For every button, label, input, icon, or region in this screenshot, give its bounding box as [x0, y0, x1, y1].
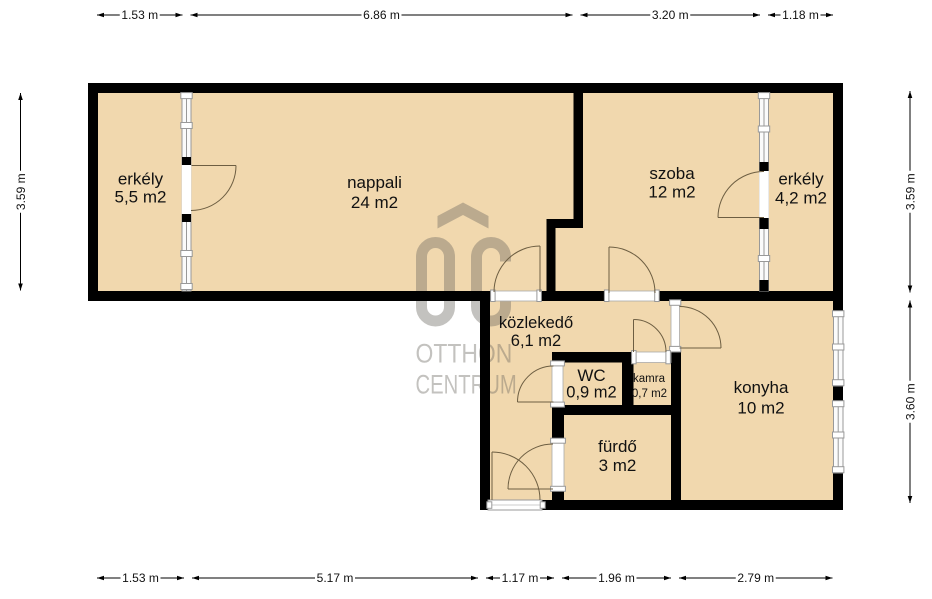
svg-text:konyha: konyha: [734, 378, 789, 397]
svg-text:3.59 m: 3.59 m: [14, 173, 28, 210]
svg-text:CENTRUM: CENTRUM: [416, 370, 517, 401]
svg-text:nappali: nappali: [347, 173, 402, 192]
svg-text:erkély: erkély: [778, 170, 824, 189]
svg-text:3.59 m: 3.59 m: [904, 173, 918, 210]
svg-text:0,7 m2: 0,7 m2: [632, 388, 667, 400]
svg-text:24 m2: 24 m2: [351, 193, 398, 212]
svg-text:3.20 m: 3.20 m: [652, 8, 689, 22]
svg-text:fürdő: fürdő: [598, 437, 637, 456]
svg-text:4,2 m2: 4,2 m2: [775, 189, 827, 208]
svg-text:1.17 m: 1.17 m: [502, 571, 539, 585]
svg-text:erkély: erkély: [118, 170, 164, 189]
svg-text:10 m2: 10 m2: [737, 399, 784, 418]
svg-text:5.17 m: 5.17 m: [317, 571, 354, 585]
svg-text:1.53 m: 1.53 m: [121, 8, 158, 22]
svg-text:2.79 m: 2.79 m: [737, 571, 774, 585]
svg-text:WC: WC: [577, 366, 605, 385]
svg-text:6.86 m: 6.86 m: [363, 8, 400, 22]
svg-text:közlekedő: közlekedő: [499, 314, 573, 332]
svg-text:6,1 m2: 6,1 m2: [511, 332, 561, 350]
svg-text:1.53 m: 1.53 m: [122, 571, 159, 585]
svg-text:5,5 m2: 5,5 m2: [115, 188, 167, 207]
svg-text:kamra: kamra: [633, 373, 666, 385]
svg-text:OTTHON: OTTHON: [416, 339, 513, 369]
svg-text:0,9 m2: 0,9 m2: [566, 384, 616, 402]
svg-text:3.60 m: 3.60 m: [904, 383, 918, 420]
svg-text:12 m2: 12 m2: [648, 183, 695, 202]
svg-text:3 m2: 3 m2: [599, 456, 637, 475]
svg-text:1.96 m: 1.96 m: [598, 571, 635, 585]
svg-text:szoba: szoba: [649, 164, 695, 183]
svg-text:1.18 m: 1.18 m: [782, 8, 819, 22]
